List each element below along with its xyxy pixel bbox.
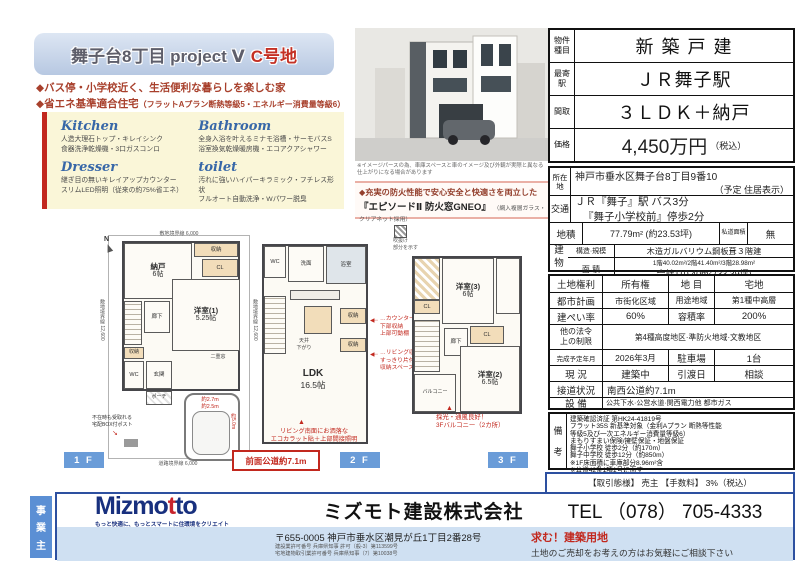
far-label: 容積率 (668, 309, 714, 324)
recruit-headline: 求む！建築用地 (531, 529, 783, 545)
owner-tab: 事 業 主 (30, 496, 52, 558)
property-type-label: 物件種目 (550, 30, 574, 62)
construction-license: 建設業許可番号 兵庫県知事 許可（般-3）第113599号 (275, 544, 481, 551)
footer-bottom-row: 〒655-0005 神戸市垂水区潮見が丘1丁目2番28号 建設業許可番号 兵庫県… (57, 527, 793, 561)
toilet-line1: 汚れに強いハイパーキラミック・フチレス形状 (198, 176, 338, 196)
car-icon (192, 411, 230, 455)
closet-cl-1f: CL (202, 259, 238, 277)
station-label: 最寄駅 (550, 63, 574, 95)
ceiling-drop-note: 天井 下がり (290, 338, 318, 351)
hallway-1f: 廊下 (144, 301, 170, 333)
private-road-value: 無 (747, 223, 793, 244)
row-completion: 完成予定年月 2026年3月 駐車場 1台 (550, 349, 793, 365)
hatch-legend-icon (394, 225, 407, 238)
floor-plan-2f: WC 洗面 浴室 天井 下がり 収納 収納 LDK 16.5帖 (254, 240, 376, 452)
access-cell: ＪＲ『舞子』駅 バス3分 『舞子小学校前』停歩2分 (570, 196, 793, 222)
kitchen-line1: 人造大理石トップ・キレイシンク (61, 135, 190, 145)
layout-value: ３ＬＤＫ＋納戸 (574, 96, 793, 128)
row-utility: 設 備 公共下水·公営水道·関西電力他 都市ガス (550, 397, 793, 408)
feature-toilet: toilet 汚れに強いハイパーキラミック・フチレス形状 フルオート自動洗浄・W… (198, 160, 338, 206)
land-recruit-block: 求む！建築用地 土地のご売却をお考えの方はお気軽にご相談下さい (531, 529, 783, 559)
delivery-box-icon (124, 439, 138, 447)
land-category-label: 地 目 (668, 276, 714, 292)
arrow-up-icon: ▲ (446, 404, 453, 413)
row-other-law: 他の法令 上の制限 第4種高度地区·準防火地域·文教地区 (550, 324, 793, 349)
closet-living-2f: 収納 (340, 338, 366, 352)
dresser-line1: 継ぎ目の無いキレイアップカウンター (61, 176, 190, 186)
boundary-top-label: 敷地境界線 6,000 (134, 230, 224, 237)
row-price: 価格 4,450万円 （税込） (550, 128, 793, 161)
access-label: 交通 (550, 196, 570, 222)
address-cell: 神戸市垂水区舞子台8丁目9番10 （予定 住居表示） (570, 168, 793, 195)
delivery-value: 相談 (714, 366, 793, 381)
room-yoshitsu1: 洋室(1) 5.25帖 (172, 279, 240, 351)
land-category-value: 宅地 (714, 276, 793, 292)
company-name: ミズモト建設株式会社 (310, 497, 537, 524)
car-width-labels: 約2.7m 約2.5m (184, 397, 236, 411)
price-value: 4,450万円 (622, 132, 708, 159)
bathroom-heading: Bathroom (198, 119, 338, 134)
title-main: 舞子台8丁目 project Ⅴ (71, 42, 245, 67)
layout-label: 間取 (550, 96, 574, 128)
row-status: 現 況 建築中 引渡日 相談 (550, 365, 793, 381)
photo-caption: ※イメージパースの為、車庫スペースと車のイメージ及び外観が実際と異なる 仕上がり… (357, 163, 553, 178)
completion-label: 完成予定年月 (550, 350, 602, 365)
car-length-label: 約5.0m (230, 413, 237, 429)
bathroom-line1: 全身入浴を叶えるミナモ浴槽・サーモバスS (198, 135, 338, 145)
building-cell: 構造·規模 木造ガルバリウム鋼板葺３階建 面 積 1階40.02m²/2階41.… (568, 245, 793, 270)
room-wc-1f: WC (124, 361, 144, 389)
arrow-left-icon: ◀┈ (370, 318, 378, 326)
realestate-license: 宅地建物取引業許可番号 兵庫県知事（7）第10038号 (275, 551, 481, 558)
zone-value: 第1種中高層 (714, 293, 793, 308)
row-access: 交通 ＪＲ『舞子』駅 バス3分 『舞子小学校前』停歩2分 (550, 195, 793, 222)
land-right-label: 土地権利 (550, 276, 602, 292)
row-coverage: 建ぺい率 60% 容積率 200% (550, 308, 793, 324)
title-lot: C号地 (251, 42, 297, 67)
status-value: 建築中 (602, 366, 668, 381)
logo-wordmark: Mizmotto (95, 494, 310, 519)
boundary-left-label: 敷地境界線 12,600 (99, 299, 106, 341)
remark-line: 等級5及び一次エネルギー消費量等級6） (570, 431, 790, 438)
remark-line: 舞子中学校 徒歩12分（約850m） (570, 452, 790, 459)
road-value: 南西公道約7.1m (602, 382, 793, 397)
closet-small-1f: 収納 (124, 347, 144, 359)
catch-copy: ◆バス停・小学校近く、生活便利な暮らしを楽しむ家 ◆省エネ基準適合住宅（フラット… (36, 81, 356, 113)
closet-cl2-3f: CL (470, 326, 504, 344)
floor-plan-1f: 敷地境界線 6,000 敷地境界線 12,600 敷地境界線 12,600 道路… (98, 233, 260, 469)
private-road-label: 私道面積 (719, 223, 747, 244)
city-plan-value: 市街化区域 (602, 293, 668, 308)
floor-label-1f: 1 F (64, 452, 104, 468)
access-line1: ＪＲ『舞子』駅 バス3分 (575, 196, 689, 209)
toilet-line2: フルオート自動洗浄・Wパワー脱臭 (198, 195, 338, 205)
porch: ポーチ (146, 391, 172, 405)
company-logo: Mizmotto もっと快適に、もっとスマートに住環境をクリエイト (57, 494, 310, 528)
spec-legal-table: 土地権利 所有権 地 目 宅地 都市計画 市街化区域 用途地域 第1種中高層 建… (548, 274, 795, 410)
fire-window-box: ◆充実の防火性能で安心安全と快適さを両立した 『エピソードⅡ 防火窓GNEO』 … (355, 181, 551, 219)
fire-line1: ◆充実の防火性能で安心安全と快適さを両立した (359, 186, 547, 198)
transaction-terms: 【取引態様】 売主 【手数料】 3%（税込） (545, 472, 795, 492)
access-line2: 『舞子小学校前』停歩2分 (583, 209, 704, 222)
zone-label: 用途地域 (668, 293, 714, 308)
structure-value: 木造ガルバリウム鋼板葺３階建 (614, 245, 793, 257)
property-type-value: 新築戸建 (574, 30, 793, 62)
delivery-box-arrow-icon: ↘ (112, 429, 118, 437)
structure-row: 構造·規模 木造ガルバリウム鋼板葺３階建 (568, 245, 793, 258)
completion-value: 2026年3月 (602, 350, 668, 365)
dresser-heading: Dresser (61, 160, 190, 175)
room-yoshitsu2: 洋室(2) 6.5帖 (460, 346, 520, 412)
arrow-up-icon: ▲ (298, 418, 305, 427)
phone-number: TEL （078） 705-4333 (537, 497, 793, 524)
room-ldk: LDK 16.5帖 (278, 368, 348, 391)
room-bath: 浴室 (326, 246, 366, 284)
parking-label: 駐車場 (668, 350, 714, 365)
utility-value: 公共下水·公営水道·関西電力他 都市ガス (602, 398, 793, 408)
room-yoshitsu3: 洋室(3) 6帖 (442, 258, 494, 324)
equipment-feature-box: Kitchen 人造大理石トップ・キレイシンク 食器洗浄乾燥機・3口ガスコンロ … (42, 112, 344, 209)
closet-top: 収納 (194, 243, 238, 257)
bathroom-line2: 浴室換気乾燥暖房機・エコアクアシャワー (198, 145, 338, 155)
stairs-1f (124, 301, 142, 345)
city-plan-label: 都市計画 (550, 293, 602, 308)
side-strip-3f (496, 258, 520, 314)
row-land-right: 土地権利 所有権 地 目 宅地 (550, 276, 793, 292)
structure-label: 構造·規模 (568, 245, 614, 257)
spec-header-table: 物件種目 新築戸建 最寄駅 ＪＲ舞子駅 間取 ３ＬＤＫ＋納戸 価格 4,450万… (548, 28, 795, 163)
row-property-type: 物件種目 新築戸建 (550, 30, 793, 62)
remarks-box: 備 考 建築確認済証 第HK24-41819号 フラット35S 新基準対象（金利… (548, 412, 795, 470)
other-law-label: 他の法令 上の制限 (550, 325, 602, 349)
double-window-note: 二重窓 (198, 353, 238, 360)
price-value-cell: 4,450万円 （税込） (574, 129, 793, 161)
row-address: 所在地 神戸市垂水区舞子台8丁目9番10 （予定 住居表示） (550, 168, 793, 195)
row-road: 接道状況 南西公道約7.1m (550, 381, 793, 397)
row-station: 最寄駅 ＪＲ舞子駅 (550, 62, 793, 95)
bullet-2: ◆省エネ基準適合住宅（フラットAプラン断熱等級5・エネルギー消費量等級6） (36, 97, 356, 113)
building-label: 建物 (550, 245, 568, 270)
floor-label-3f: 3 F (488, 452, 528, 468)
delivery-label: 引渡日 (668, 366, 714, 381)
price-label: 価格 (550, 129, 574, 161)
room-wc-2f: WC (264, 246, 286, 278)
annotation-balcony: 採光・通風良好！ 3Fバルコニー（2カ所） (436, 414, 504, 431)
address-note: （予定 住居表示） (575, 183, 789, 196)
other-law-value: 第4種高度地区·準防火地域·文教地区 (602, 325, 793, 349)
kitchen-line2: 食器洗浄乾燥機・3口ガスコンロ (61, 145, 190, 155)
floor-area-breakdown: 1階40.02m²/2階41.40m²/3階28.98m² (653, 258, 755, 267)
far-value: 200% (714, 309, 793, 324)
address-label: 所在地 (550, 168, 570, 195)
company-address-block: 〒655-0005 神戸市垂水区潮見が丘1丁目2番28号 建設業許可番号 兵庫県… (275, 530, 481, 558)
stairs-2f (264, 296, 286, 354)
row-land-area: 地積 77.79m² (約23.53坪) 私道面積 無 (550, 222, 793, 244)
house-illustration (355, 28, 551, 161)
room-genkan: 玄関 (146, 361, 172, 389)
toilet-heading: toilet (198, 160, 338, 175)
feature-bathroom: Bathroom 全身入浴を叶えるミナモ浴槽・サーモバスS 浴室換気乾燥暖房機・… (198, 119, 338, 155)
stairs-3f (414, 320, 440, 372)
land-area-label: 地積 (550, 223, 582, 244)
remark-line: ※1F床面積に車庫部分8.96m²含 (570, 460, 790, 467)
boundary-bottom-label: 道路境界線 6,000 (128, 460, 228, 467)
row-city-plan: 都市計画 市街化区域 用途地域 第1種中高層 (550, 292, 793, 308)
closet-cl1-3f: CL (414, 300, 440, 314)
annotation-ecocarat: リビング南面にお洒落な エコカラット貼＋上部間接照明 (252, 428, 376, 444)
recruit-consult-line: 土地のご売却をお考えの方はお気軽にご相談下さい (531, 546, 783, 559)
price-tax-note: （税込） (710, 139, 746, 152)
company-address: 〒655-0005 神戸市垂水区潮見が丘1丁目2番28号 (275, 530, 481, 544)
row-layout: 間取 ３ＬＤＫ＋納戸 (550, 95, 793, 128)
bcr-label: 建ぺい率 (550, 309, 602, 324)
remarks-label: 備 考 (550, 414, 567, 468)
compass-label: N (104, 236, 109, 243)
remark-line: フラット35S 新基準対象（金利Aプラン 断熱等性能 (570, 423, 790, 430)
row-building: 建物 構造·規模 木造ガルバリウム鋼板葺３階建 面 積 1階40.02m²/2階… (550, 244, 793, 270)
dining-table-icon (304, 306, 332, 334)
arrow-left-icon: ◀┈ (370, 352, 378, 360)
feature-kitchen: Kitchen 人造大理石トップ・キレイシンク 食器洗浄乾燥機・3口ガスコンロ (61, 119, 190, 155)
parking-value: 1台 (714, 350, 793, 365)
closet-counter-2f: 収納 (340, 308, 366, 324)
company-footer: Mizmotto もっと快適に、もっとスマートに住環境をクリエイト ミズモト建設… (55, 492, 795, 560)
fire-line2: 『エピソードⅡ 防火窓GNEO』 （網入複層ガラス・クリアネット採用） (359, 199, 547, 224)
floor-label-2f: 2 F (340, 452, 380, 468)
footer-top-row: Mizmotto もっと快適に、もっとスマートに住環境をクリエイト ミズモト建設… (57, 494, 793, 527)
bcr-value: 60% (602, 309, 668, 324)
photo-caption-line2: 仕上がりになる場合があります (357, 170, 553, 177)
room-senmen: 洗面 (288, 246, 324, 282)
house-photo (355, 28, 551, 161)
road-label: 接道状況 (550, 382, 602, 397)
flyer-title: 舞子台8丁目 project Ⅴ C号地 (34, 33, 334, 75)
kitchen-heading: Kitchen (61, 119, 190, 134)
land-area-value: 77.79m² (約23.53坪) (582, 223, 719, 244)
bullet-1: ◆バス停・小学校近く、生活便利な暮らしを楽しむ家 (36, 81, 356, 97)
kitchen-counter (290, 290, 340, 300)
utility-label: 設 備 (550, 398, 602, 408)
remarks-content: 建築確認済証 第HK24-41819号 フラット35S 新基準対象（金利Aプラン… (567, 414, 793, 468)
station-value: ＪＲ舞子駅 (574, 63, 793, 95)
address-value: 神戸市垂水区舞子台8丁目9番10 (575, 168, 789, 183)
delivery-box-note: 不在時も受取れる 宅配BOX付ポスト (92, 415, 148, 428)
spec-location-table: 所在地 神戸市垂水区舞子台8丁目9番10 （予定 住居表示） 交通 ＪＲ『舞子』… (548, 166, 795, 272)
void-hatch-area (414, 258, 440, 300)
status-label: 現 況 (550, 366, 602, 381)
dresser-line2: スリムLED照明（従来の約75%省エネ） (61, 186, 190, 196)
feature-dresser: Dresser 継ぎ目の無いキレイアップカウンター スリムLED照明（従来の約7… (61, 160, 190, 206)
land-right-value: 所有権 (602, 276, 668, 292)
front-road-badge: 前面公道約7.1m (232, 450, 320, 471)
